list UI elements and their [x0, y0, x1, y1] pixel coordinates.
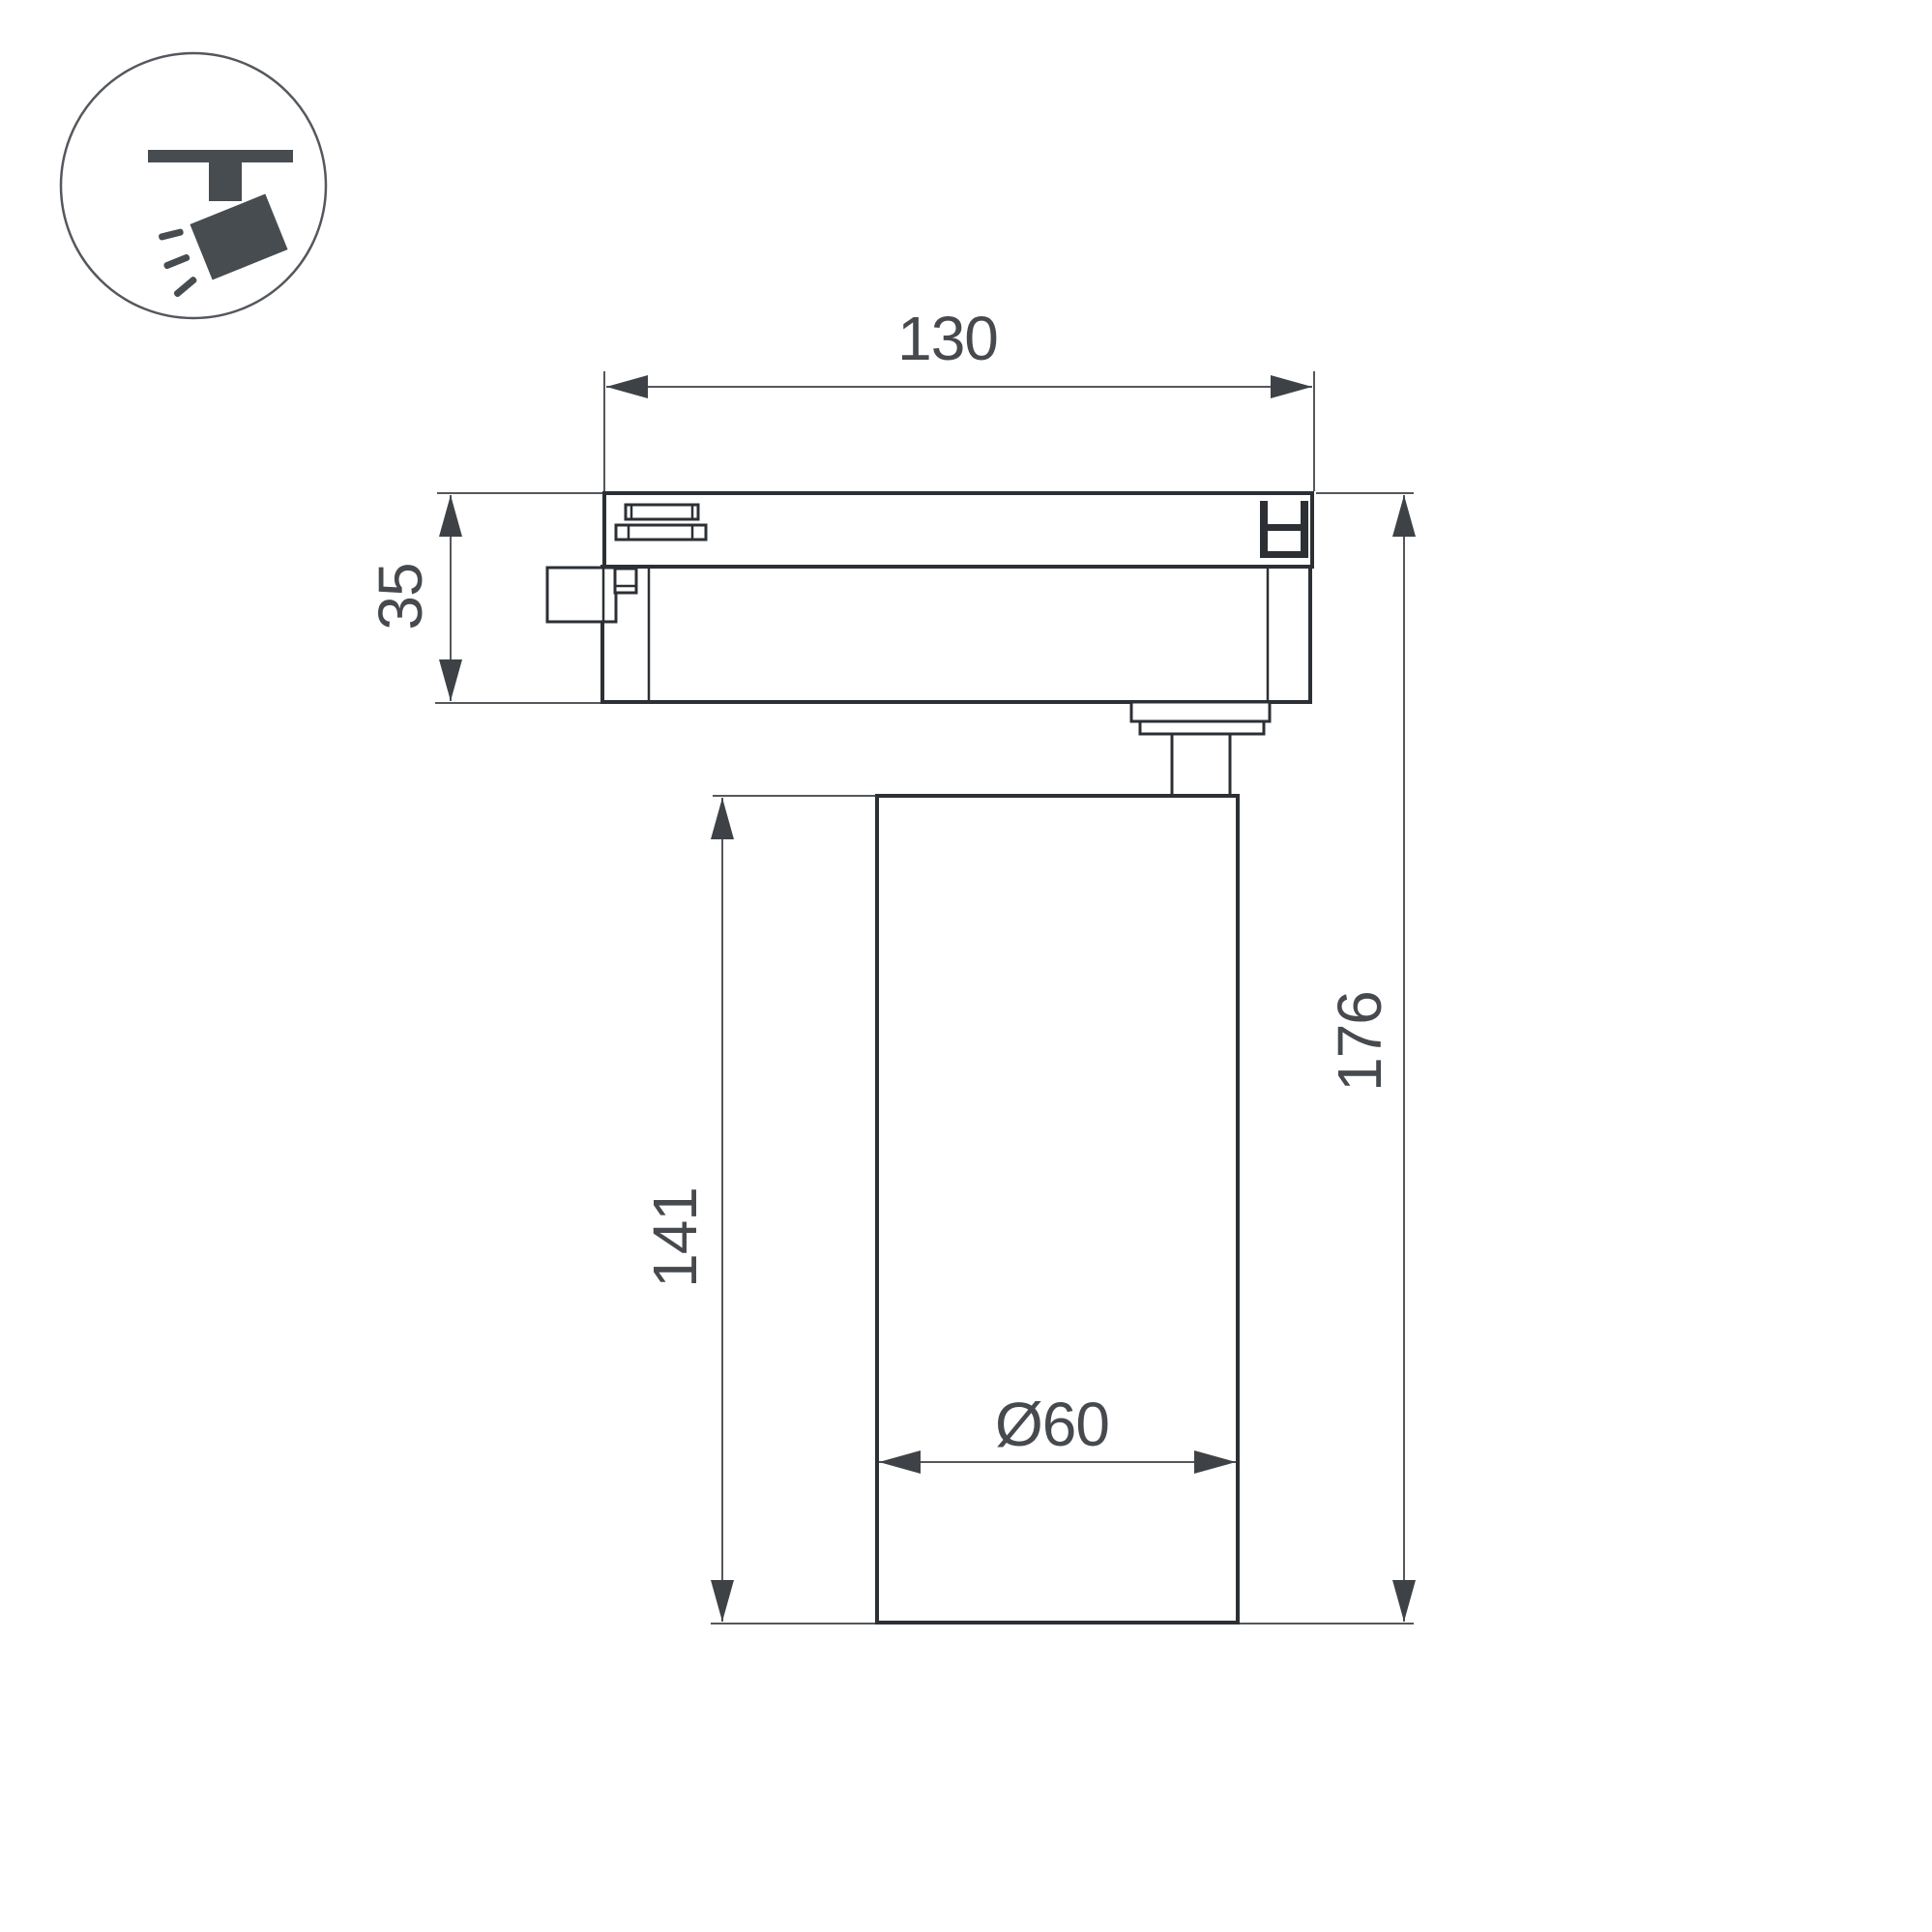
technical-drawing-page: 130 35 141 176 Ø60 — [0, 0, 1932, 1932]
dim-label-d60: Ø60 — [995, 1390, 1109, 1459]
icon-stem — [209, 161, 242, 201]
cylinder-body — [877, 796, 1238, 1623]
arrow-down-icon — [1392, 1580, 1416, 1622]
adapter-latch-notch — [615, 569, 636, 593]
swivel-flange-upper — [1131, 702, 1270, 721]
arrow-up-icon — [439, 495, 462, 537]
swivel-stem — [1172, 734, 1230, 796]
arrow-down-icon — [439, 659, 462, 701]
arrow-left-icon — [606, 375, 648, 398]
dim-label-141: 141 — [640, 1187, 710, 1288]
dim-label-130: 130 — [897, 304, 998, 373]
track-light-icon — [61, 53, 326, 318]
drawing-canvas: 130 35 141 176 Ø60 — [0, 0, 1932, 1932]
arrow-up-icon — [1392, 495, 1416, 537]
adapter-contact-clip-upper — [626, 505, 698, 519]
adapter-locking-lever — [547, 568, 616, 622]
hook-mid-bar — [1268, 524, 1301, 531]
spotlight-body — [877, 702, 1270, 1623]
arrow-right-icon — [1271, 375, 1312, 398]
track-adapter — [547, 493, 1312, 702]
dim-label-176: 176 — [1325, 991, 1394, 1092]
arrow-up-icon — [711, 798, 734, 839]
swivel-flange-lower — [1140, 721, 1264, 734]
arrow-down-icon — [711, 1580, 734, 1622]
dim-label-35: 35 — [366, 563, 435, 629]
dimension-track-width: 130 — [606, 304, 1312, 398]
dimension-body-height: 141 — [640, 798, 734, 1622]
hook-wall-right — [1301, 501, 1308, 558]
hook-bottom-bar — [1260, 551, 1308, 558]
dimension-adapter-height: 35 — [366, 495, 462, 701]
hook-wall-left — [1260, 501, 1268, 558]
dimension-overall-height: 176 — [1325, 495, 1416, 1622]
adapter-upper-housing — [604, 493, 1312, 567]
adapter-lower-housing — [602, 567, 1310, 702]
